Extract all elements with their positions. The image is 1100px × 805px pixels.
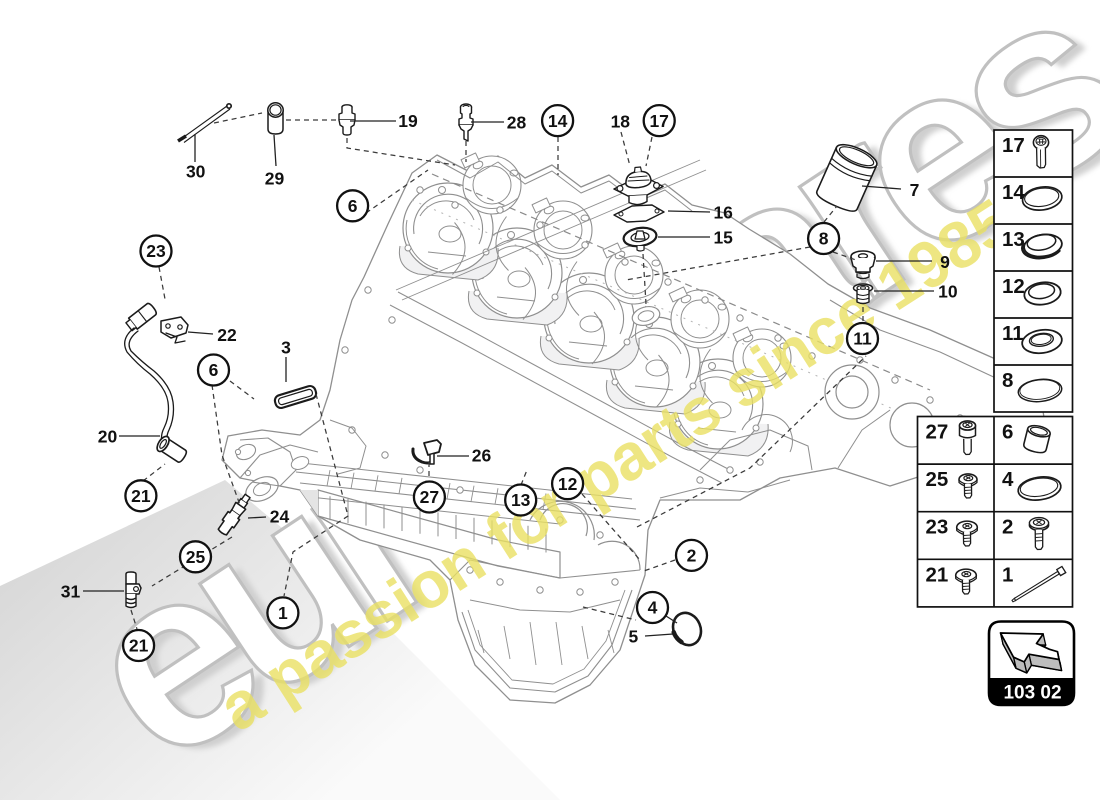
svg-text:28: 28: [507, 112, 527, 132]
svg-text:17: 17: [1002, 134, 1025, 157]
svg-text:5: 5: [629, 627, 639, 647]
svg-text:21: 21: [926, 563, 949, 586]
svg-text:19: 19: [398, 111, 418, 131]
svg-text:23: 23: [926, 516, 949, 539]
svg-text:2: 2: [687, 546, 697, 566]
svg-text:3: 3: [281, 337, 291, 357]
svg-text:17: 17: [649, 111, 668, 131]
svg-text:11: 11: [853, 329, 872, 349]
svg-text:22: 22: [217, 325, 237, 345]
svg-text:21: 21: [129, 636, 149, 656]
svg-text:12: 12: [558, 474, 578, 494]
svg-text:27: 27: [420, 487, 439, 507]
svg-text:16: 16: [713, 203, 733, 223]
svg-text:1: 1: [278, 603, 288, 623]
svg-text:10: 10: [938, 282, 958, 302]
svg-text:23: 23: [146, 241, 166, 261]
svg-text:24: 24: [270, 506, 290, 526]
svg-text:9: 9: [940, 252, 950, 272]
svg-text:30: 30: [186, 161, 206, 181]
svg-text:25: 25: [926, 468, 949, 491]
svg-text:14: 14: [548, 111, 568, 131]
svg-text:6: 6: [209, 360, 219, 380]
svg-text:12: 12: [1002, 275, 1025, 298]
svg-text:8: 8: [819, 229, 829, 249]
svg-text:13: 13: [511, 490, 531, 510]
svg-text:11: 11: [1002, 322, 1024, 345]
svg-text:1: 1: [1002, 563, 1013, 586]
svg-text:2: 2: [1002, 516, 1013, 539]
svg-text:27: 27: [926, 421, 949, 444]
svg-text:20: 20: [98, 426, 118, 446]
svg-text:6: 6: [1002, 421, 1013, 444]
svg-text:25: 25: [186, 547, 206, 567]
svg-text:4: 4: [1002, 468, 1014, 491]
svg-text:4: 4: [648, 598, 658, 618]
svg-text:7: 7: [910, 180, 920, 200]
svg-text:8: 8: [1002, 369, 1013, 392]
svg-text:31: 31: [61, 581, 81, 601]
svg-text:6: 6: [348, 196, 358, 216]
svg-text:103 02: 103 02: [1003, 683, 1061, 704]
svg-text:26: 26: [472, 446, 492, 466]
svg-text:21: 21: [131, 486, 151, 506]
svg-text:18: 18: [611, 111, 631, 131]
svg-text:29: 29: [265, 168, 285, 188]
svg-text:15: 15: [713, 228, 733, 248]
